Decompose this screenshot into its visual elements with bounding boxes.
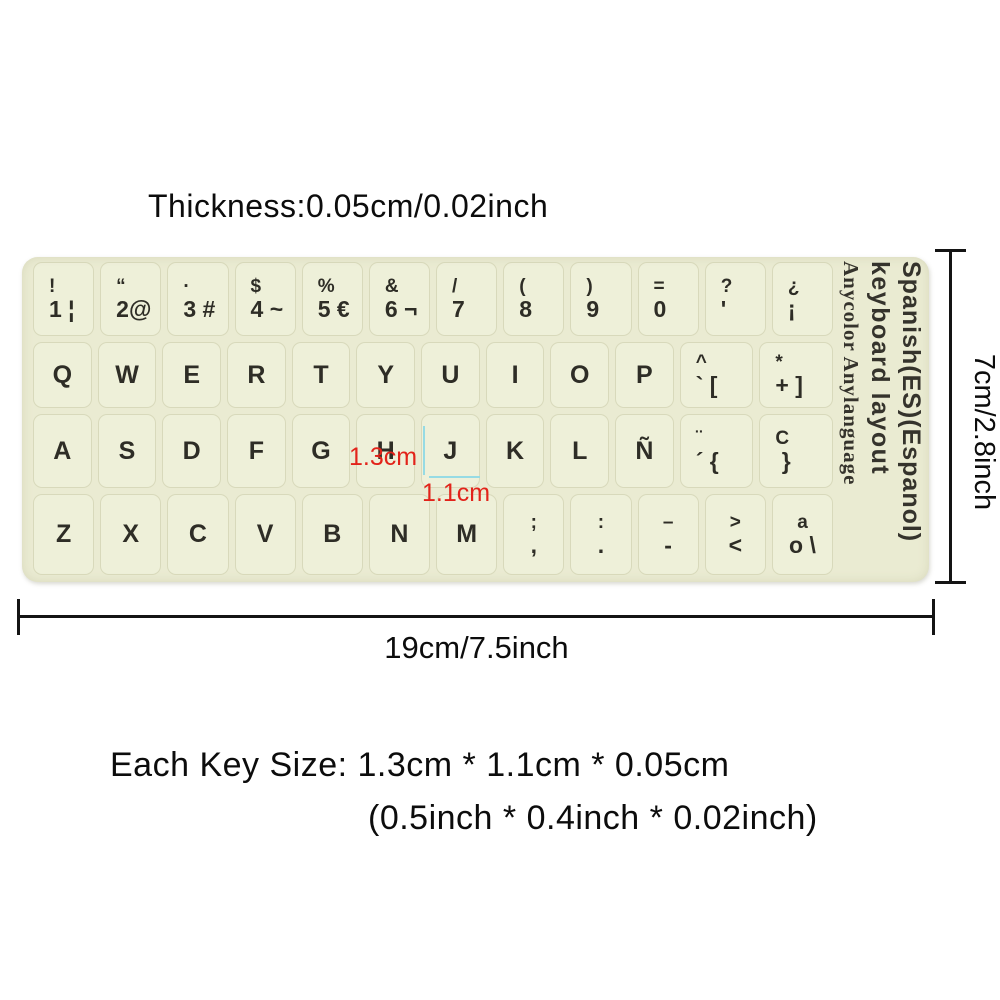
key-size-line2: (0.5inch * 0.4inch * 0.02inch) — [368, 799, 818, 838]
key-shift-label: C — [775, 428, 832, 449]
key-label: C — [189, 520, 207, 549]
keyboard-key: =0 — [638, 262, 699, 336]
keyboard-key: *+ ] — [759, 342, 833, 408]
key-main-label: ` [ — [696, 373, 753, 398]
key-label: T — [313, 361, 328, 390]
key-shift-label: & — [385, 276, 429, 297]
keyboard-key: R — [227, 342, 286, 408]
key-shift-label: % — [318, 276, 362, 297]
key-shift-label: ; — [531, 512, 537, 533]
key-main-label: 8 — [519, 297, 563, 322]
keyboard-key: X — [100, 494, 161, 575]
keyboard-key: ·3 # — [167, 262, 228, 336]
height-dimension-label: 7cm/2.8inch — [964, 290, 1000, 574]
keyboard-key: I — [486, 342, 545, 408]
key-shift-label: ? — [721, 276, 765, 297]
key-label: Q — [53, 361, 72, 390]
key-shift-label: ¨ — [696, 428, 753, 449]
key-main-label: < — [729, 533, 742, 558]
key-label: O — [570, 361, 589, 390]
keyboard-key: N — [369, 494, 430, 575]
key-main-label: 5 € — [318, 297, 362, 322]
key-label: V — [257, 520, 274, 549]
key-shift-label: ! — [49, 276, 93, 297]
key-label: N — [390, 520, 408, 549]
thickness-label: Thickness:0.05cm/0.02inch — [148, 188, 548, 225]
keyboard-key: W — [98, 342, 157, 408]
key-label: K — [506, 437, 524, 466]
keyboard-key: L — [550, 414, 609, 488]
key-shift-label: : — [598, 512, 604, 533]
keyboard-key: )9 — [570, 262, 631, 336]
key-shift-label: > — [730, 512, 741, 533]
key-label: F — [249, 437, 264, 466]
key-height-marker-line — [429, 476, 480, 478]
key-label: E — [183, 361, 200, 390]
keyboard-key: :. — [570, 494, 631, 575]
side-text-language: Spanish(ES)(Espanol) — [895, 261, 926, 577]
key-main-label: 6 ¬ — [385, 297, 429, 322]
key-main-label: ´ { — [696, 449, 753, 474]
key-width-label: 1.3cm — [349, 443, 417, 472]
keyboard-key: F — [227, 414, 286, 488]
key-width-marker-line — [423, 426, 425, 475]
key-shift-label: ¿ — [788, 276, 832, 297]
keyboard-key: C — [167, 494, 228, 575]
keyboard-sticker: !1 ¦“2@·3 #$4 ~%5 €&6 ¬/7(8)9=0?'¿¡QWERT… — [22, 257, 929, 582]
keyboard-key: –- — [638, 494, 699, 575]
height-dimension-cap-top — [935, 249, 966, 252]
key-shift-label: $ — [251, 276, 295, 297]
key-label: J — [443, 437, 457, 466]
keyboard-key: D — [162, 414, 221, 488]
width-dimension-label: 19cm/7.5inch — [18, 630, 935, 666]
keyboard-key: P — [615, 342, 674, 408]
key-main-label: + ] — [775, 373, 832, 398]
key-shift-label: a — [797, 512, 808, 533]
key-shift-label: – — [663, 512, 674, 533]
keyboard-key: ;, — [503, 494, 564, 575]
keyboard-key: $4 ~ — [235, 262, 296, 336]
key-label: L — [572, 437, 587, 466]
keyboard-key: T — [292, 342, 351, 408]
side-text-brand: Anycolor Anylanguage — [837, 261, 864, 577]
key-height-label: 1.1cm — [422, 479, 490, 508]
key-main-label: - — [664, 533, 672, 558]
keyboard-key: ?' — [705, 262, 766, 336]
key-label: X — [122, 520, 139, 549]
sticker-side-text: Spanish(ES)(Espanol) keyboard layout Any… — [834, 261, 926, 577]
key-label: Y — [377, 361, 394, 390]
key-shift-label: * — [775, 352, 832, 373]
key-label: Z — [56, 520, 71, 549]
keyboard-key: Z — [33, 494, 94, 575]
key-label: M — [456, 520, 477, 549]
key-shift-label: “ — [116, 276, 160, 297]
keyboard-key: B — [302, 494, 363, 575]
key-label: B — [323, 520, 341, 549]
key-shift-label: ( — [519, 276, 563, 297]
height-dimension-line — [949, 250, 952, 584]
key-main-label: } — [775, 449, 832, 474]
key-label: S — [119, 437, 136, 466]
key-label: W — [115, 361, 139, 390]
keyboard-rows: !1 ¦“2@·3 #$4 ~%5 €&6 ¬/7(8)9=0?'¿¡QWERT… — [30, 259, 836, 580]
key-shift-label: ^ — [696, 352, 753, 373]
key-label: D — [183, 437, 201, 466]
key-main-label: ' — [721, 297, 765, 322]
keyboard-key: Q — [33, 342, 92, 408]
key-label: I — [512, 361, 519, 390]
keyboard-key: C } — [759, 414, 833, 488]
key-size-line1: Each Key Size: 1.3cm * 1.1cm * 0.05cm — [110, 746, 729, 785]
key-label: Ñ — [635, 437, 653, 466]
key-main-label: 0 — [654, 297, 698, 322]
keyboard-key: ao \ — [772, 494, 833, 575]
keyboard-key: S — [98, 414, 157, 488]
keyboard-key: Y — [356, 342, 415, 408]
key-label: R — [247, 361, 265, 390]
key-shift-label: · — [183, 276, 227, 297]
width-dimension-line — [18, 615, 935, 618]
key-label: U — [441, 361, 459, 390]
key-main-label: 4 ~ — [251, 297, 295, 322]
keyboard-row: QWERTYUIOP^` [*+ ] — [30, 339, 836, 411]
keyboard-key: E — [162, 342, 221, 408]
keyboard-key: (8 — [503, 262, 564, 336]
keyboard-key: ^` [ — [680, 342, 754, 408]
key-main-label: 1 ¦ — [49, 297, 93, 322]
key-main-label: 9 — [586, 297, 630, 322]
keyboard-key: /7 — [436, 262, 497, 336]
key-shift-label: / — [452, 276, 496, 297]
key-main-label: 3 # — [183, 297, 227, 322]
keyboard-key: K — [486, 414, 545, 488]
keyboard-key: &6 ¬ — [369, 262, 430, 336]
keyboard-key: ¿¡ — [772, 262, 833, 336]
key-main-label: o \ — [789, 533, 816, 558]
key-shift-label: ) — [586, 276, 630, 297]
key-main-label: 7 — [452, 297, 496, 322]
keyboard-row: !1 ¦“2@·3 #$4 ~%5 €&6 ¬/7(8)9=0?'¿¡ — [30, 259, 836, 339]
keyboard-key: G — [292, 414, 351, 488]
keyboard-key: %5 € — [302, 262, 363, 336]
key-shift-label: = — [654, 276, 698, 297]
keyboard-key: ¨´ { — [680, 414, 754, 488]
key-main-label: . — [598, 533, 604, 558]
keyboard-key: >< — [705, 494, 766, 575]
side-text-layout: keyboard layout — [864, 261, 895, 577]
keyboard-key: Ñ — [615, 414, 674, 488]
key-main-label: , — [531, 533, 537, 558]
keyboard-key: !1 ¦ — [33, 262, 94, 336]
keyboard-key: V — [235, 494, 296, 575]
keyboard-key: O — [550, 342, 609, 408]
key-main-label: 2@ — [116, 297, 160, 322]
keyboard-key: U — [421, 342, 480, 408]
key-label: P — [636, 361, 653, 390]
keyboard-key: “2@ — [100, 262, 161, 336]
height-dimension-cap-bottom — [935, 581, 966, 584]
key-main-label: ¡ — [788, 297, 832, 322]
key-label: G — [311, 437, 330, 466]
key-label: A — [53, 437, 71, 466]
keyboard-key: A — [33, 414, 92, 488]
